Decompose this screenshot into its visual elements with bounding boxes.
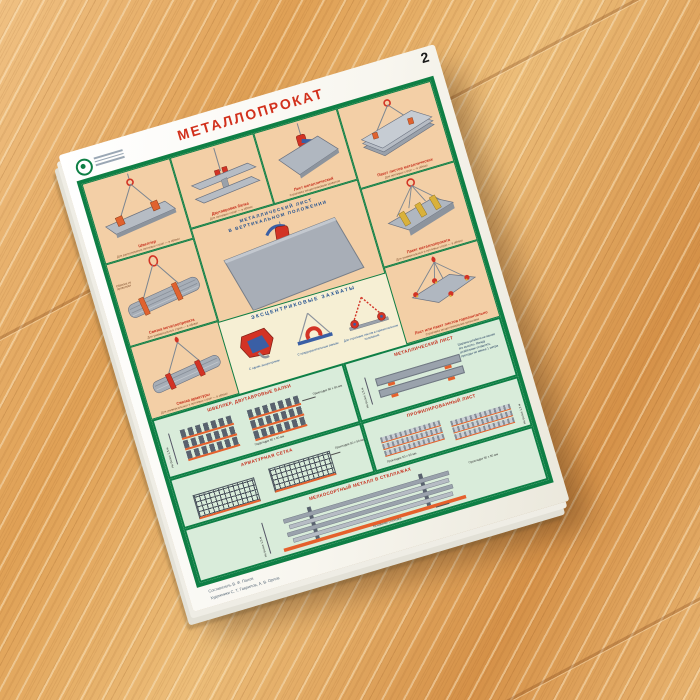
height-label: Не более 1,2 м bbox=[515, 395, 527, 425]
spacer-label: Прокладки 50 x 50 мм bbox=[335, 438, 367, 450]
spacer-label: Прокладки 50 x 50 мм bbox=[468, 451, 503, 465]
beam-stack-diagram bbox=[180, 415, 241, 462]
leader-line bbox=[331, 452, 341, 455]
spacer-label: Прокладки 60 x 60 мм bbox=[312, 383, 347, 397]
leader-line bbox=[302, 396, 316, 400]
wooden-table-background: 2 МЕТАЛЛОПРОКАТ Составитель В. Ф. Панов … bbox=[0, 0, 700, 700]
